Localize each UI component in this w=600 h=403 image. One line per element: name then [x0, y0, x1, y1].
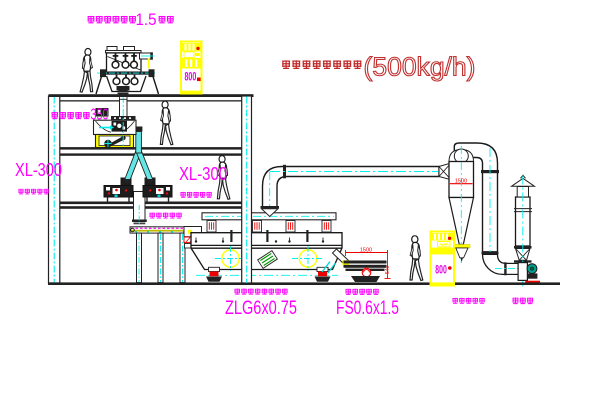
svg-text:800: 800	[435, 265, 447, 277]
svg-text:1.5: 1.5	[136, 11, 157, 29]
svg-text:XL-300: XL-300	[179, 163, 227, 184]
svg-text:(500kg/h): (500kg/h)	[364, 52, 476, 82]
svg-text:FS0.6x1.5: FS0.6x1.5	[336, 298, 399, 319]
svg-text:800: 800	[185, 69, 197, 83]
svg-text:540: 540	[385, 265, 391, 274]
svg-text:1500: 1500	[455, 179, 467, 185]
svg-text:350: 350	[91, 107, 109, 124]
svg-text:ZLG6x0.75: ZLG6x0.75	[225, 298, 297, 319]
svg-text:1500: 1500	[360, 248, 372, 254]
svg-text:XL-300: XL-300	[15, 159, 62, 180]
